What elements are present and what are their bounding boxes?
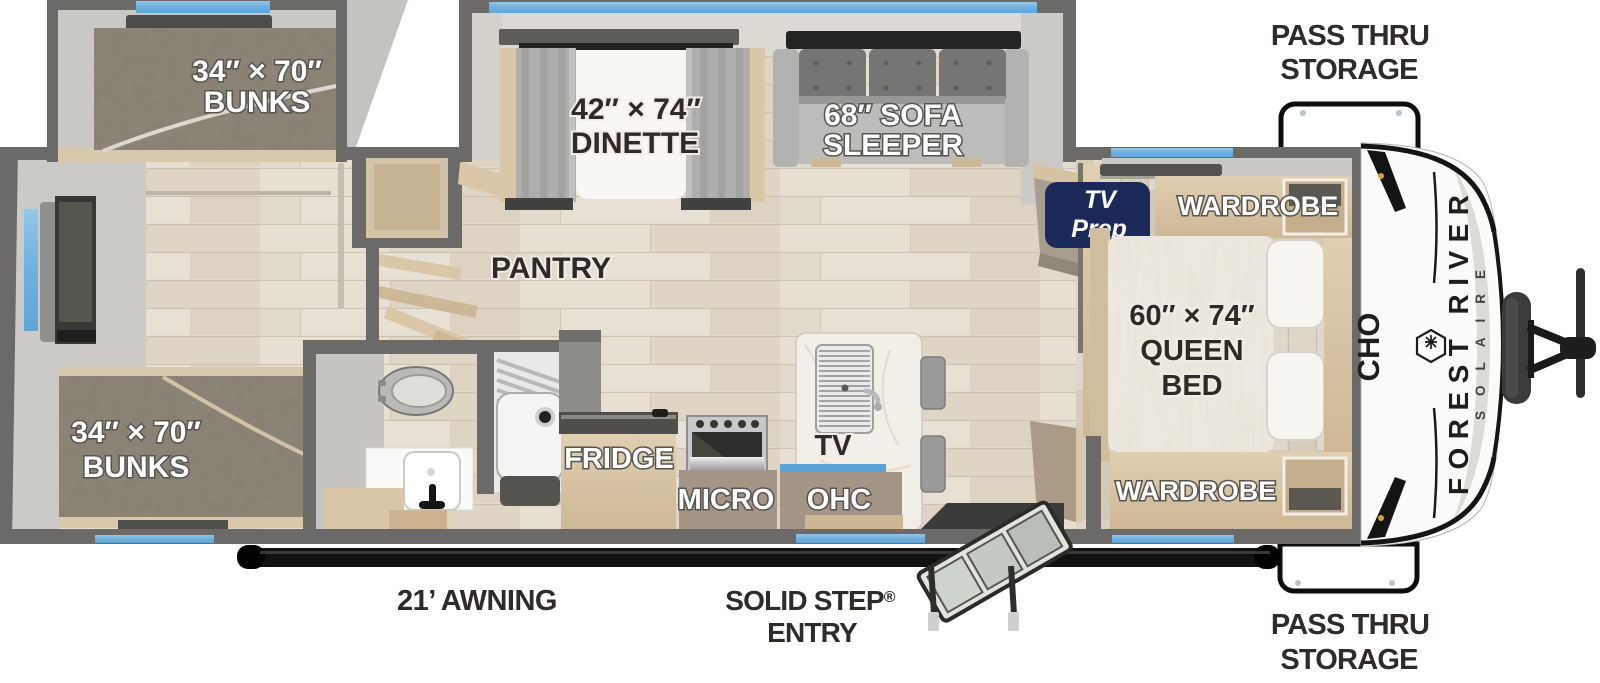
svg-text:FRIDGE: FRIDGE	[564, 443, 674, 475]
svg-text:34″ × 70″: 34″ × 70″	[71, 416, 201, 449]
svg-text:TV: TV	[1084, 186, 1118, 214]
svg-text:TV: TV	[814, 430, 852, 462]
svg-text:WARDROBE: WARDROBE	[1116, 476, 1277, 506]
svg-text:DINETTE: DINETTE	[571, 127, 699, 160]
svg-text:BUNKS: BUNKS	[204, 86, 311, 119]
svg-text:68″ SOFA: 68″ SOFA	[824, 99, 962, 132]
svg-text:QUEEN: QUEEN	[1140, 335, 1243, 367]
svg-text:21’ AWNING: 21’ AWNING	[397, 585, 557, 617]
svg-text:WARDROBE: WARDROBE	[1178, 191, 1339, 221]
svg-text:PASS THRU: PASS THRU	[1271, 609, 1429, 641]
svg-text:STORAGE: STORAGE	[1280, 54, 1418, 86]
svg-text:SOLID STEP®: SOLID STEP®	[725, 585, 895, 616]
svg-text:34″ × 70″: 34″ × 70″	[192, 55, 322, 88]
svg-text:MICRO: MICRO	[678, 484, 775, 516]
svg-text:OHC: OHC	[807, 484, 872, 516]
svg-text:BED: BED	[1161, 370, 1222, 402]
svg-text:PASS THRU: PASS THRU	[1271, 20, 1429, 52]
svg-text:FOREST RIVER: FOREST RIVER	[1443, 195, 1474, 495]
svg-text:42″ × 74″: 42″ × 74″	[571, 93, 701, 126]
svg-text:PANTRY: PANTRY	[491, 252, 611, 285]
svg-text:STORAGE: STORAGE	[1280, 644, 1418, 676]
svg-text:BUNKS: BUNKS	[83, 451, 190, 484]
svg-text:ENTRY: ENTRY	[767, 617, 858, 648]
svg-text:SLEEPER: SLEEPER	[823, 129, 963, 162]
svg-text:60″ × 74″: 60″ × 74″	[1129, 300, 1254, 332]
svg-text:CHO: CHO	[1351, 313, 1386, 382]
